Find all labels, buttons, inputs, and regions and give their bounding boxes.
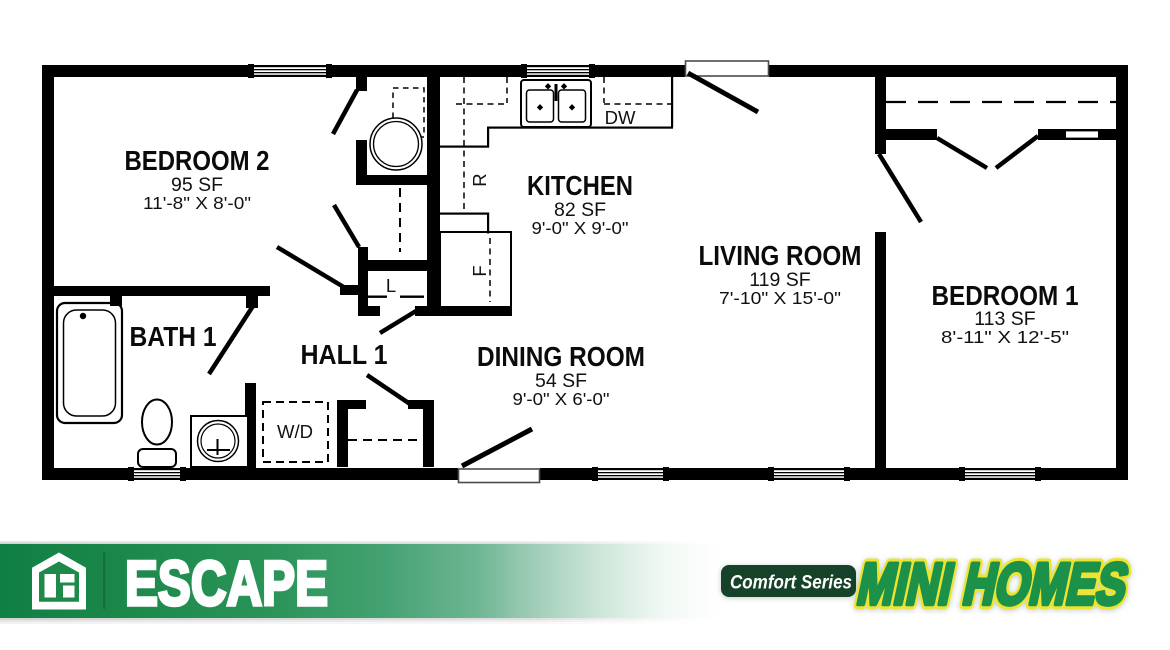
svg-text:9'-0" X 9'-0": 9'-0" X 9'-0": [532, 218, 629, 238]
svg-text:DINING ROOM: DINING ROOM: [477, 341, 645, 372]
svg-text:9'-0" X 6'-0": 9'-0" X 6'-0": [513, 389, 610, 409]
svg-text:F: F: [469, 265, 490, 276]
svg-text:BATH 1: BATH 1: [130, 321, 217, 352]
svg-text:LIVING ROOM: LIVING ROOM: [699, 240, 862, 271]
svg-text:MINI HOMES: MINI HOMES: [852, 551, 1134, 617]
svg-text:R: R: [469, 173, 490, 186]
svg-text:ESCAPE: ESCAPE: [125, 549, 328, 619]
svg-text:11'-8" X 8'-0": 11'-8" X 8'-0": [143, 193, 251, 213]
svg-text:L: L: [386, 275, 396, 296]
svg-text:KITCHEN: KITCHEN: [527, 170, 633, 201]
svg-text:HALL 1: HALL 1: [301, 339, 388, 370]
svg-text:W/D: W/D: [277, 421, 313, 442]
svg-text:BEDROOM 2: BEDROOM 2: [125, 145, 270, 176]
svg-text:BEDROOM 1: BEDROOM 1: [932, 280, 1079, 311]
svg-text:7'-10" X 15'-0": 7'-10" X 15'-0": [719, 288, 841, 308]
svg-text:8'-11" X 12'-5": 8'-11" X 12'-5": [941, 327, 1069, 347]
svg-text:DW: DW: [605, 107, 636, 128]
svg-text:Comfort Series: Comfort Series: [730, 573, 852, 594]
